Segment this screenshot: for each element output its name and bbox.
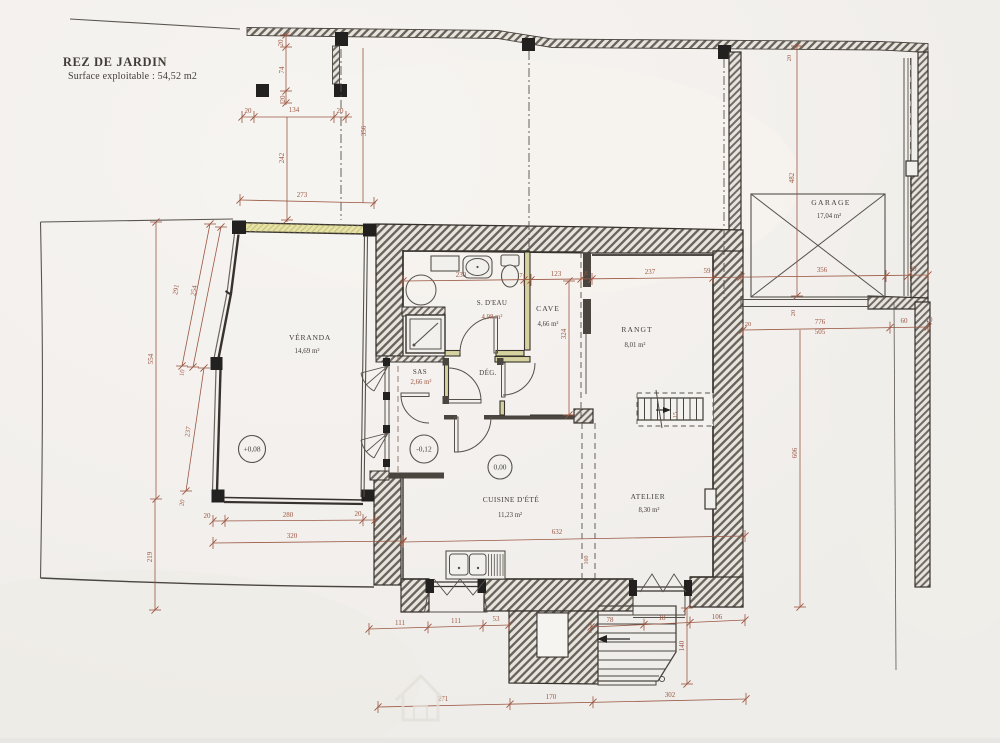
svg-text:230: 230 bbox=[456, 271, 467, 279]
svg-text:REZ DE JARDIN: REZ DE JARDIN bbox=[63, 55, 167, 69]
svg-text:S. D'EAU: S. D'EAU bbox=[477, 299, 508, 307]
svg-text:14,69 m²: 14,69 m² bbox=[294, 347, 319, 355]
svg-text:SAS: SAS bbox=[413, 368, 427, 376]
svg-text:106: 106 bbox=[712, 613, 723, 621]
svg-text:237: 237 bbox=[645, 268, 656, 276]
svg-text:17,04 m²: 17,04 m² bbox=[817, 213, 841, 220]
svg-text:4,66 m²: 4,66 m² bbox=[538, 321, 559, 328]
svg-text:+0,08: +0,08 bbox=[243, 445, 260, 454]
svg-text:140: 140 bbox=[678, 640, 686, 651]
svg-text:302: 302 bbox=[665, 691, 676, 699]
svg-text:20: 20 bbox=[279, 95, 287, 103]
svg-text:Surface exploitable : 54,52 m2: Surface exploitable : 54,52 m2 bbox=[68, 71, 197, 82]
svg-text:160: 160 bbox=[584, 556, 590, 565]
svg-text:280: 280 bbox=[283, 511, 294, 519]
svg-text:CAVE: CAVE bbox=[536, 304, 560, 313]
svg-text:505: 505 bbox=[815, 328, 826, 336]
svg-text:356: 356 bbox=[360, 125, 368, 136]
svg-text:74: 74 bbox=[278, 66, 286, 74]
svg-text:111: 111 bbox=[395, 619, 405, 627]
svg-text:606: 606 bbox=[791, 447, 799, 458]
svg-text:CUISINE D'ÉTÉ: CUISINE D'ÉTÉ bbox=[483, 494, 539, 504]
svg-text:273: 273 bbox=[297, 191, 308, 199]
svg-text:20: 20 bbox=[786, 55, 793, 62]
svg-text:10: 10 bbox=[179, 369, 187, 376]
svg-text:219: 219 bbox=[146, 551, 154, 562]
svg-text:320: 320 bbox=[287, 532, 298, 540]
svg-text:20: 20 bbox=[277, 39, 285, 47]
svg-text:53: 53 bbox=[493, 615, 501, 623]
svg-text:ATELIER: ATELIER bbox=[631, 492, 666, 501]
svg-text:482: 482 bbox=[788, 172, 796, 183]
svg-text:GARAGE: GARAGE bbox=[811, 198, 850, 207]
svg-text:0,00: 0,00 bbox=[494, 463, 507, 472]
svg-text:10: 10 bbox=[926, 316, 934, 324]
svg-text:134: 134 bbox=[289, 106, 300, 114]
svg-text:242: 242 bbox=[278, 152, 286, 163]
svg-text:4,98 m²: 4,98 m² bbox=[482, 314, 503, 321]
svg-text:20: 20 bbox=[790, 310, 797, 317]
svg-text:60: 60 bbox=[901, 317, 909, 325]
svg-text:170: 170 bbox=[546, 693, 557, 701]
svg-text:324: 324 bbox=[560, 328, 568, 339]
svg-text:18: 18 bbox=[659, 614, 667, 622]
svg-text:8,30 m²: 8,30 m² bbox=[639, 507, 660, 514]
svg-text:20: 20 bbox=[337, 107, 345, 115]
svg-text:2,66 m²: 2,66 m² bbox=[411, 379, 432, 386]
svg-text:VÉRANDA: VÉRANDA bbox=[289, 332, 331, 342]
svg-text:59: 59 bbox=[704, 267, 712, 275]
svg-text:20: 20 bbox=[179, 499, 187, 506]
svg-text:DÉG.: DÉG. bbox=[479, 369, 497, 377]
svg-text:RANGT: RANGT bbox=[621, 325, 652, 334]
svg-text:123: 123 bbox=[551, 270, 562, 278]
svg-text:8,01 m²: 8,01 m² bbox=[625, 342, 646, 349]
svg-text:20: 20 bbox=[745, 321, 752, 328]
svg-text:237: 237 bbox=[183, 425, 192, 437]
svg-text:20: 20 bbox=[204, 512, 212, 520]
svg-text:78: 78 bbox=[607, 616, 615, 624]
svg-text:20: 20 bbox=[245, 107, 253, 115]
svg-text:356: 356 bbox=[817, 266, 828, 274]
svg-text:8: 8 bbox=[584, 270, 587, 277]
svg-text:776: 776 bbox=[815, 318, 826, 326]
svg-text:-0,12: -0,12 bbox=[416, 445, 432, 454]
svg-text:111: 111 bbox=[451, 617, 461, 625]
svg-text:554: 554 bbox=[147, 353, 155, 364]
svg-text:11,23 m²: 11,23 m² bbox=[498, 512, 522, 519]
svg-text:632: 632 bbox=[552, 528, 563, 536]
svg-text:15: 15 bbox=[673, 412, 679, 418]
svg-text:20: 20 bbox=[355, 510, 363, 518]
svg-text:20: 20 bbox=[910, 265, 918, 273]
